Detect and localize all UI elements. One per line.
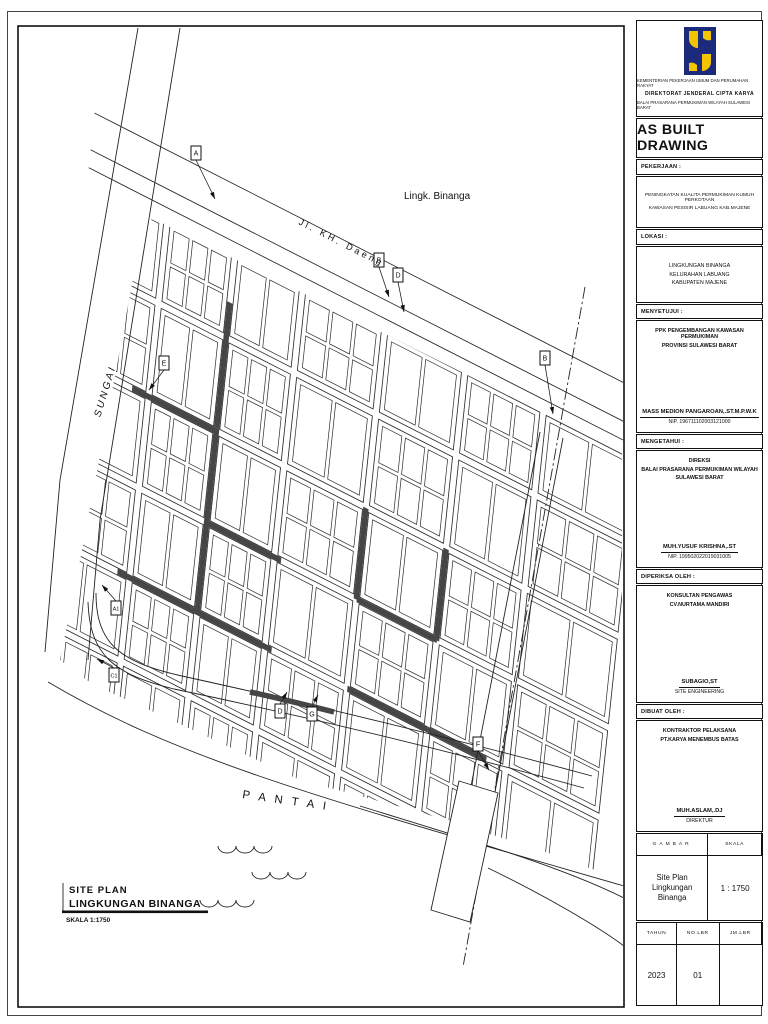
kontraktor-line-1: KONTRAKTOR PELAKSANA (663, 728, 736, 734)
dibuat-label-box: DIBUAT OLEH : (636, 704, 763, 719)
marker-label: D (395, 273, 400, 280)
mengetahui-label-box: MENGETAHUI : (636, 434, 763, 449)
dibuat-content-box: KONTRAKTOR PELAKSANA PT.KARYA MENEMBUS B… (636, 720, 763, 832)
as-built-drawing-title: AS BUILT DRAWING (637, 119, 762, 157)
dibuat-name: MUH.ASLAM,.DJ (674, 808, 724, 817)
menyetujui-nip: NIP. 196711102003121000 (668, 419, 730, 425)
kontraktor-line-2: PT.KARYA MENEMBUS BATAS (660, 737, 738, 743)
ppk-line-2: PROVINSI SULAWESI BARAT (662, 343, 737, 349)
ministry-line-3: BALAI PRASARANA PERMUKIMAN WILAYAH SULAW… (637, 100, 762, 110)
direksi-line-2: BALAI PRASARANA PERMUKIMAN WILAYAH (641, 467, 758, 473)
mengetahui-name: MUH.YUSUF KRISHNA,.ST (661, 544, 738, 553)
title-block: KEMENTERIAN PEKERJAAN UMUM DAN PERUMAHAN… (636, 20, 763, 1008)
lokasi-line-1: LINGKUNGAN BINANGA (669, 263, 730, 269)
menyetujui-name: MASS MEDION PANGAROAN,.ST.M.P.W.K (640, 409, 758, 418)
lokasi-line-3: KABUPATEN MAJENE (672, 280, 727, 286)
marker-label: C1 (110, 674, 117, 680)
gambar-header: GAMBAR (637, 834, 708, 856)
menyetujui-label-box: MENYETUJUI : (636, 304, 763, 319)
dibuat-role: DIREKTUR (686, 818, 713, 824)
lokasi-content-box: LINGKUNGAN BINANGA KELURAHAN LABUANG KAB… (636, 246, 763, 303)
lokasi-line-2: KELURAHAN LABUANG (669, 272, 729, 278)
diperiksa-content-box: KONSULTAN PENGAWAS CV.NURTAMA MANDIRI SU… (636, 585, 763, 703)
konsultan-line-2: CV.NURTAMA MANDIRI (670, 602, 730, 608)
mengetahui-content-box: DIREKSI BALAI PRASARANA PERMUKIMAN WILAY… (636, 450, 763, 568)
menyetujui-content-box: PPK PENGEMBANGAN KAWASAN PERMUKIMAN PROV… (636, 320, 763, 433)
mengetahui-nip: NIP. 199502022019031005 (668, 554, 731, 560)
area-name-label: Lingk. Binanga (404, 191, 471, 202)
dibuat-label: DIBUAT OLEH : (637, 705, 762, 715)
tahun-header: TAHUN (637, 923, 677, 945)
pu-logo (684, 27, 716, 75)
konsultan-line-1: KONSULTAN PENGAWAS (667, 593, 733, 599)
legend-title-line-2: LINGKUNGAN BINANGA (69, 898, 201, 910)
diperiksa-label: DIPERIKSA OLEH : (637, 570, 762, 580)
marker-label: A (194, 151, 199, 158)
no-lbr-value: 01 (677, 945, 720, 1005)
pekerjaan-line-2: KAWASAN PESISIR LABUANG KAB.MAJENE (649, 206, 751, 211)
agency-header: KEMENTERIAN PEKERJAAN UMUM DAN PERUMAHAN… (636, 20, 763, 117)
pekerjaan-label-box: PEKERJAAN : (636, 159, 763, 175)
marker-label: B (543, 356, 548, 363)
mengetahui-label: MENGETAHUI : (637, 435, 762, 445)
no-lbr-header: NO.LBR (677, 923, 720, 945)
diperiksa-label-box: DIPERIKSA OLEH : (636, 569, 763, 584)
gambar-value: Site Plan Lingkungan Binanga (637, 856, 708, 920)
direksi-line-3: SULAWESI BARAT (675, 475, 723, 481)
diperiksa-role: SITE ENGINEERING (675, 689, 724, 695)
tahun-value: 2023 (637, 945, 677, 1005)
marker-label: D (277, 709, 282, 716)
marker-label: A1 (113, 607, 120, 613)
pekerjaan-label: PEKERJAAN : (637, 160, 762, 170)
tahun-lbr-table: TAHUN NO.LBR JM.LBR 2023 01 (636, 922, 763, 1006)
pekerjaan-line-1: PENINGKATAN KUALITA PERMUKIMAN KUMUH PER… (637, 193, 762, 203)
skala-value: 1 : 1750 (708, 856, 762, 920)
marker-label: F (476, 742, 480, 749)
legend-title-line-1: SITE PLAN (69, 885, 128, 896)
pekerjaan-content-box: PENINGKATAN KUALITA PERMUKIMAN KUMUH PER… (636, 176, 763, 228)
skala-header: SKALA (708, 834, 762, 856)
jm-lbr-value (720, 945, 763, 1005)
legend-scale-label: SKALA 1:1750 (66, 917, 111, 924)
jm-lbr-header: JM.LBR (720, 923, 763, 945)
lokasi-label: LOKASI : (637, 230, 762, 240)
direksi-line-1: DIREKSI (689, 458, 711, 464)
diperiksa-name: SUBAGIO,ST (679, 679, 719, 688)
gambar-value-line-2: Binanga (658, 893, 687, 903)
gambar-skala-table: GAMBAR SKALA Site Plan Lingkungan Binang… (636, 833, 763, 921)
menyetujui-label: MENYETUJUI : (637, 305, 762, 315)
lokasi-label-box: LOKASI : (636, 229, 763, 245)
site-plan-canvas: ABDEBA1C1DGFJl. KH. DaengLingk. BinangaS… (0, 0, 636, 1024)
ministry-line-1: KEMENTERIAN PEKERJAAN UMUM DAN PERUMAHAN… (637, 78, 762, 88)
ministry-line-2: DIREKTORAT JENDERAL CIPTA KARYA (645, 91, 754, 97)
drawing-sheet: ABDEBA1C1DGFJl. KH. DaengLingk. BinangaS… (0, 0, 768, 1024)
marker-label: G (309, 712, 314, 719)
as-built-drawing-box: AS BUILT DRAWING (636, 118, 763, 158)
gambar-value-line-1: Site Plan Lingkungan (637, 873, 707, 892)
ppk-line-1: PPK PENGEMBANGAN KAWASAN PERMUKIMAN (637, 328, 762, 340)
marker-label: E (162, 361, 167, 368)
